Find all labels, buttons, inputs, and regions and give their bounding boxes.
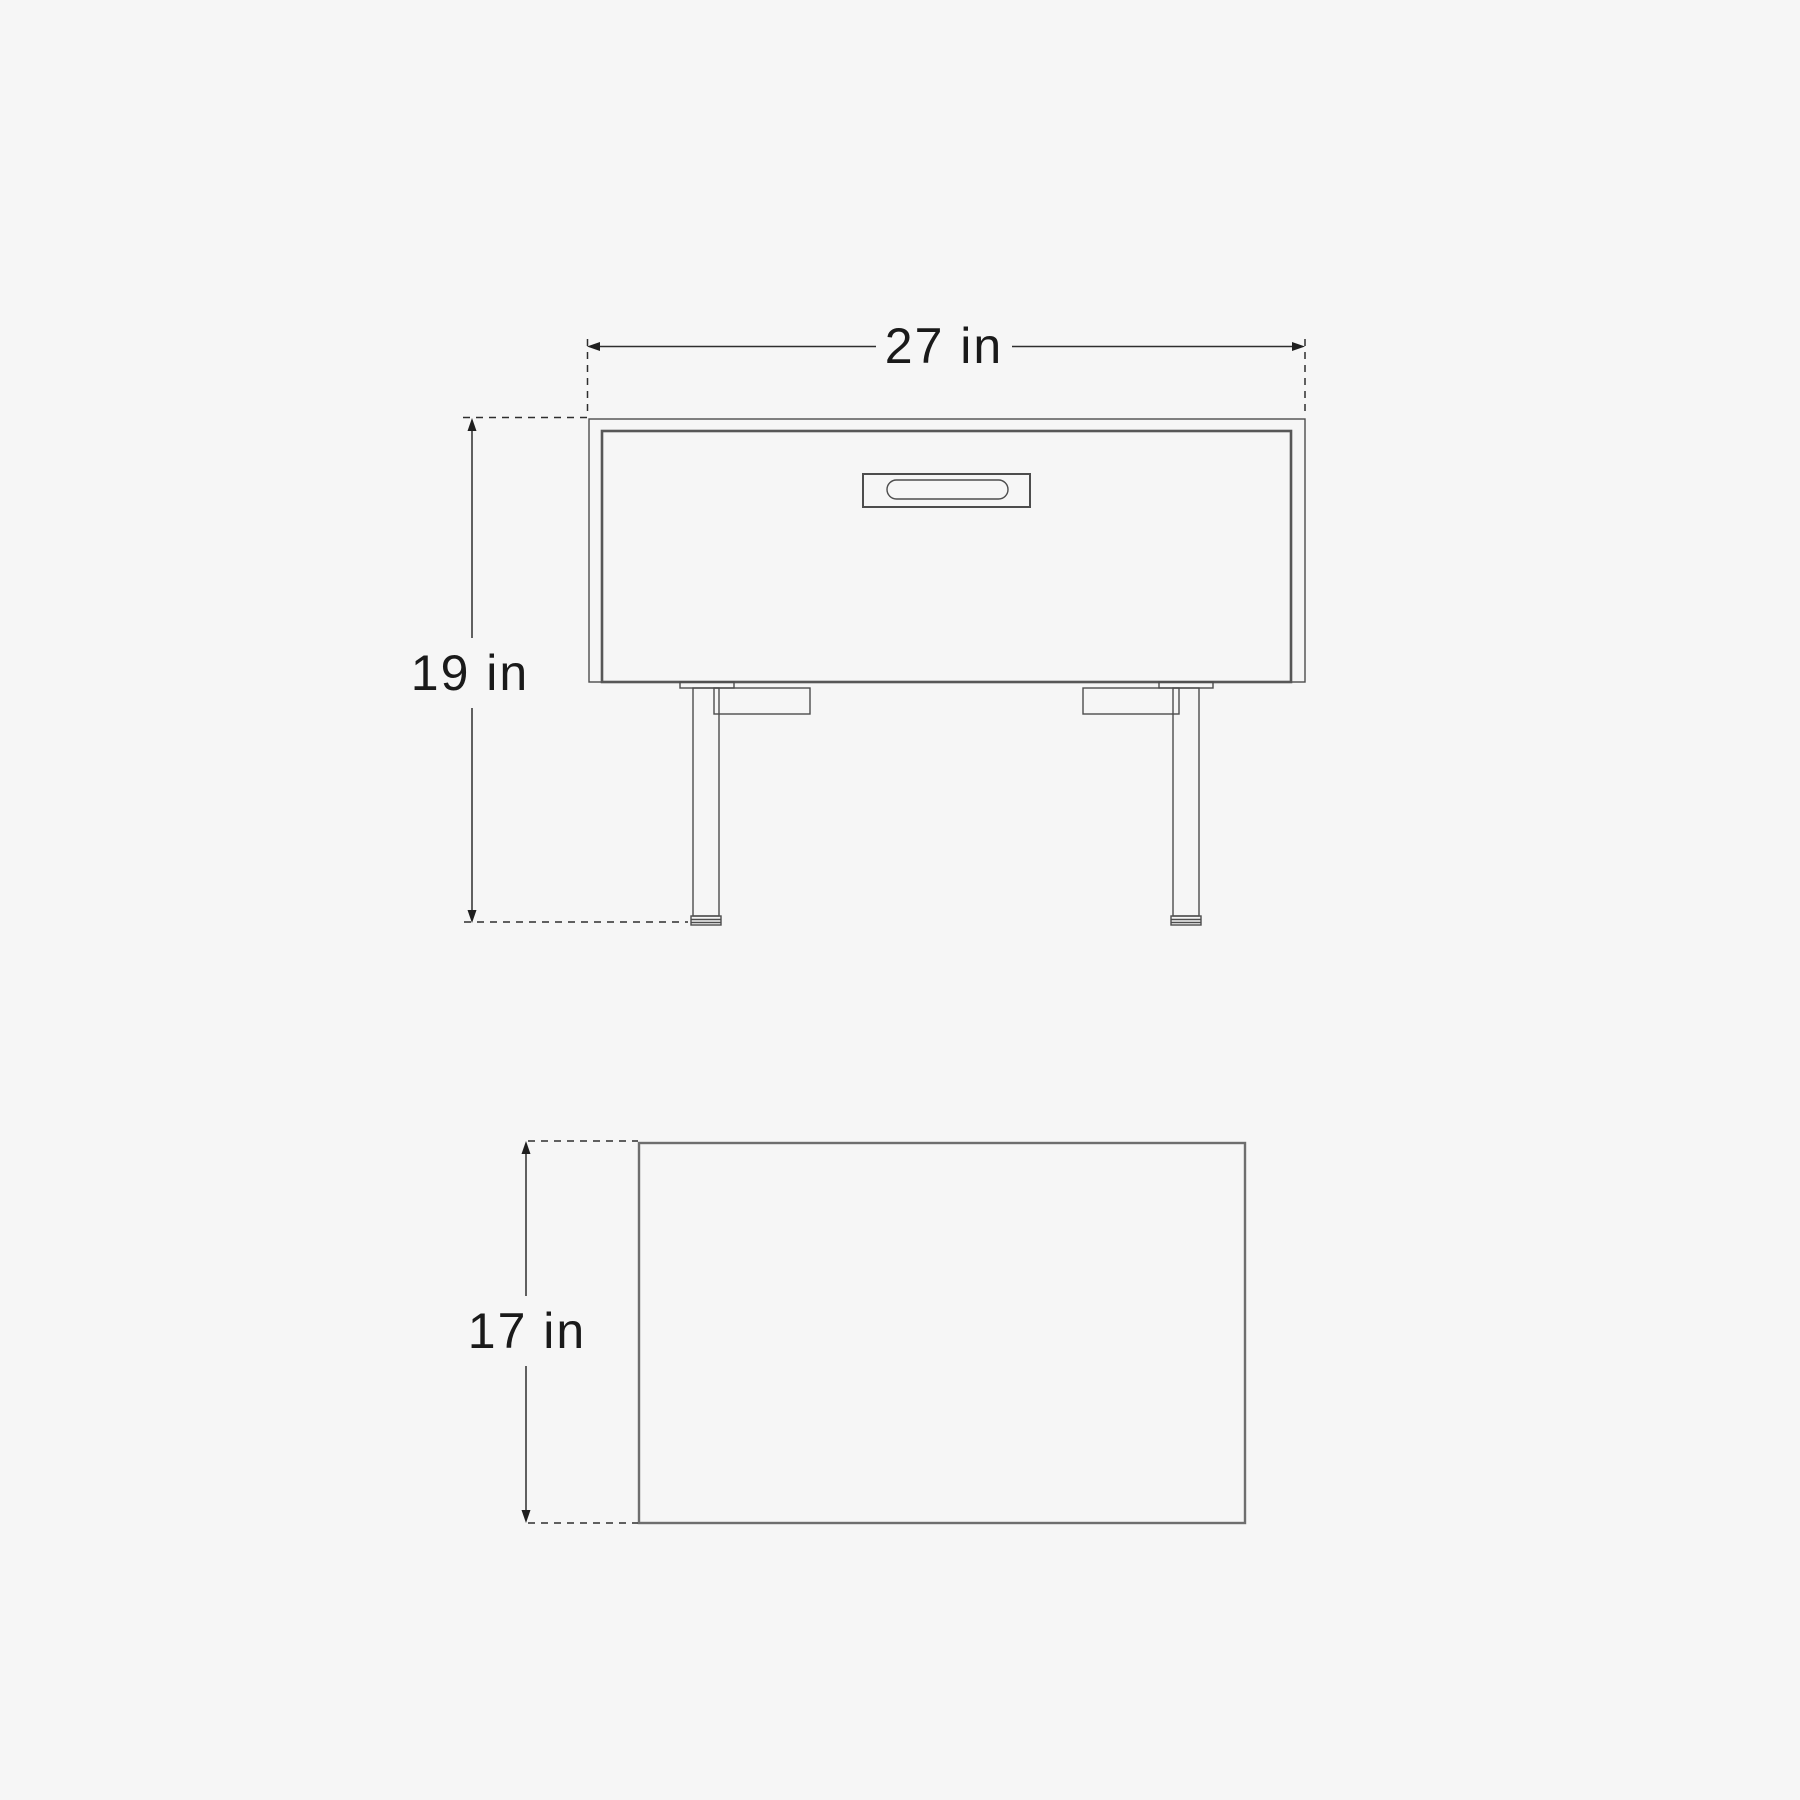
- top-view: [639, 1143, 1245, 1523]
- right-leg: [1083, 682, 1213, 925]
- left-leg-bracket: [714, 688, 810, 714]
- right-leg-post: [1173, 688, 1199, 916]
- width-dimension-label: 27 in: [885, 318, 1003, 374]
- left-leg: [680, 682, 810, 925]
- left-leg-foot: [691, 916, 721, 925]
- right-leg-bracket: [1083, 688, 1179, 714]
- front-view: [589, 419, 1305, 925]
- depth-dimension-label: 17 in: [468, 1303, 586, 1359]
- arrowhead-up-icon: [522, 1141, 531, 1154]
- arrowhead-up-icon: [468, 418, 477, 431]
- arrowhead-right-icon: [1292, 342, 1305, 351]
- arrowhead-down-icon: [468, 910, 477, 923]
- left-leg-post: [693, 688, 719, 916]
- cabinet-outline: [589, 419, 1305, 682]
- drawing-canvas: 27 in 19 in 17 in: [0, 0, 1800, 1800]
- depth-dimension: 17 in: [468, 1141, 638, 1523]
- dimension-diagram: 27 in 19 in 17 in: [0, 0, 1800, 1800]
- drawer-handle: [863, 474, 1030, 507]
- right-leg-foot: [1171, 916, 1201, 925]
- arrowhead-down-icon: [522, 1510, 531, 1523]
- width-dimension: 27 in: [587, 318, 1305, 417]
- height-dimension-label: 19 in: [411, 645, 529, 701]
- height-dimension: 19 in: [411, 418, 688, 924]
- top-view-outline: [639, 1143, 1245, 1523]
- arrowhead-left-icon: [587, 342, 600, 351]
- drawer-front: [602, 431, 1291, 682]
